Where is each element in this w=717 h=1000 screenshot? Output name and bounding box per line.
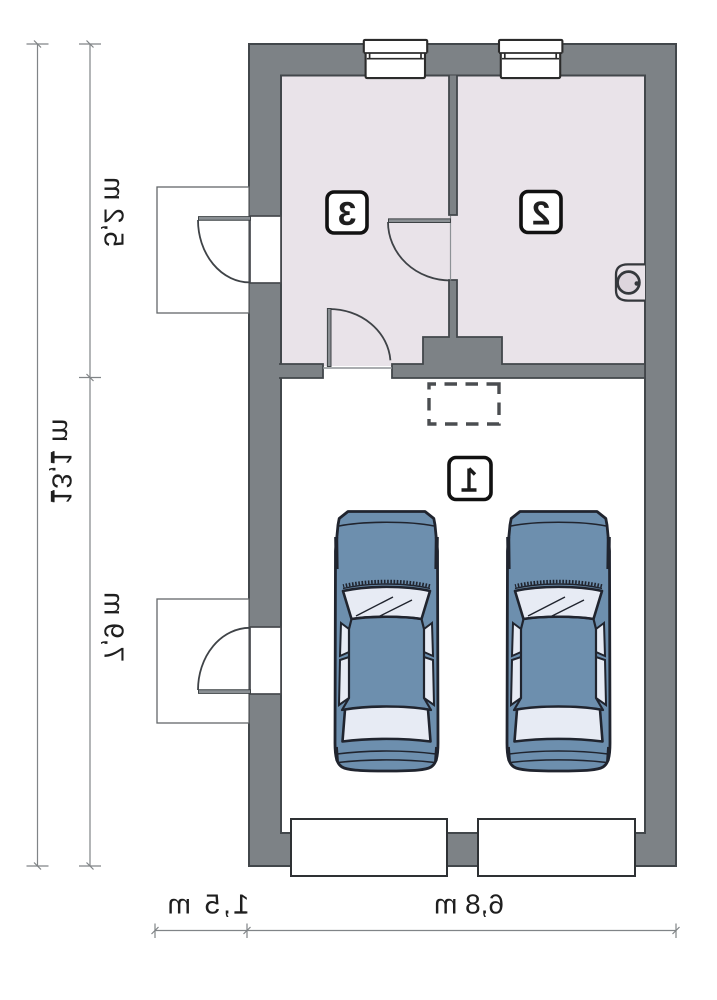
svg-text:7,9 m: 7,9 m [99,592,130,662]
svg-text:3: 3 [338,195,356,232]
svg-text:6,8 m: 6,8 m [434,889,504,920]
svg-text:5,2 m: 5,2 m [99,177,130,247]
svg-text:1,5 m: 1,5 m [164,889,249,920]
svg-text:2: 2 [532,195,550,232]
